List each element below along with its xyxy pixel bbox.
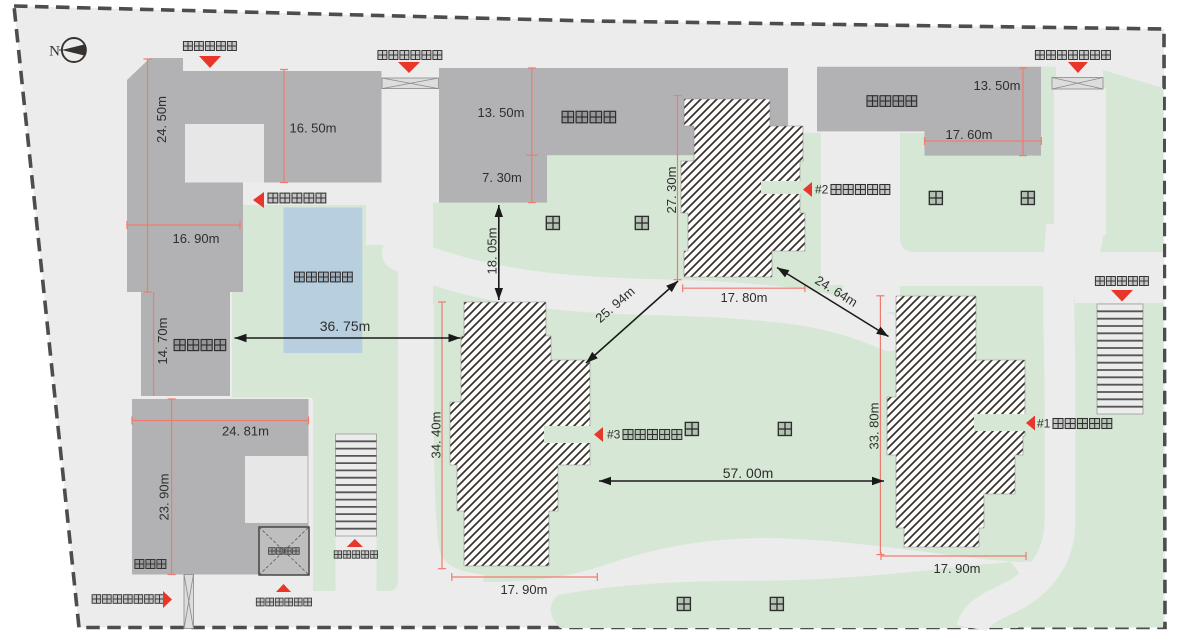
svg-text:24. 50m: 24. 50m xyxy=(154,96,169,143)
svg-text:13. 50m: 13. 50m xyxy=(478,105,525,120)
svg-text:17. 90m: 17. 90m xyxy=(501,582,548,597)
svg-text:18. 05m: 18. 05m xyxy=(485,228,500,275)
svg-text:34. 40m: 34. 40m xyxy=(429,412,444,459)
svg-text:16. 90m: 16. 90m xyxy=(173,231,220,246)
svg-text:17. 80m: 17. 80m xyxy=(721,290,768,305)
svg-text:7. 30m: 7. 30m xyxy=(482,170,522,185)
svg-text:57. 00m: 57. 00m xyxy=(723,465,774,481)
svg-text:#2: #2 xyxy=(815,183,829,197)
svg-text:36. 75m: 36. 75m xyxy=(320,318,371,334)
svg-text:14. 70m: 14. 70m xyxy=(155,318,170,365)
svg-text:23. 90m: 23. 90m xyxy=(157,474,172,521)
svg-text:17. 90m: 17. 90m xyxy=(934,561,981,576)
svg-text:13. 50m: 13. 50m xyxy=(974,78,1021,93)
svg-text:17. 60m: 17. 60m xyxy=(946,127,993,142)
svg-text:27. 30m: 27. 30m xyxy=(664,167,679,214)
svg-text:N: N xyxy=(49,44,60,60)
svg-text:#3: #3 xyxy=(607,428,621,442)
svg-text:16. 50m: 16. 50m xyxy=(290,121,337,136)
svg-text:#1: #1 xyxy=(1037,417,1051,431)
svg-text:24. 81m: 24. 81m xyxy=(222,424,269,439)
svg-text:33. 80m: 33. 80m xyxy=(867,403,882,450)
